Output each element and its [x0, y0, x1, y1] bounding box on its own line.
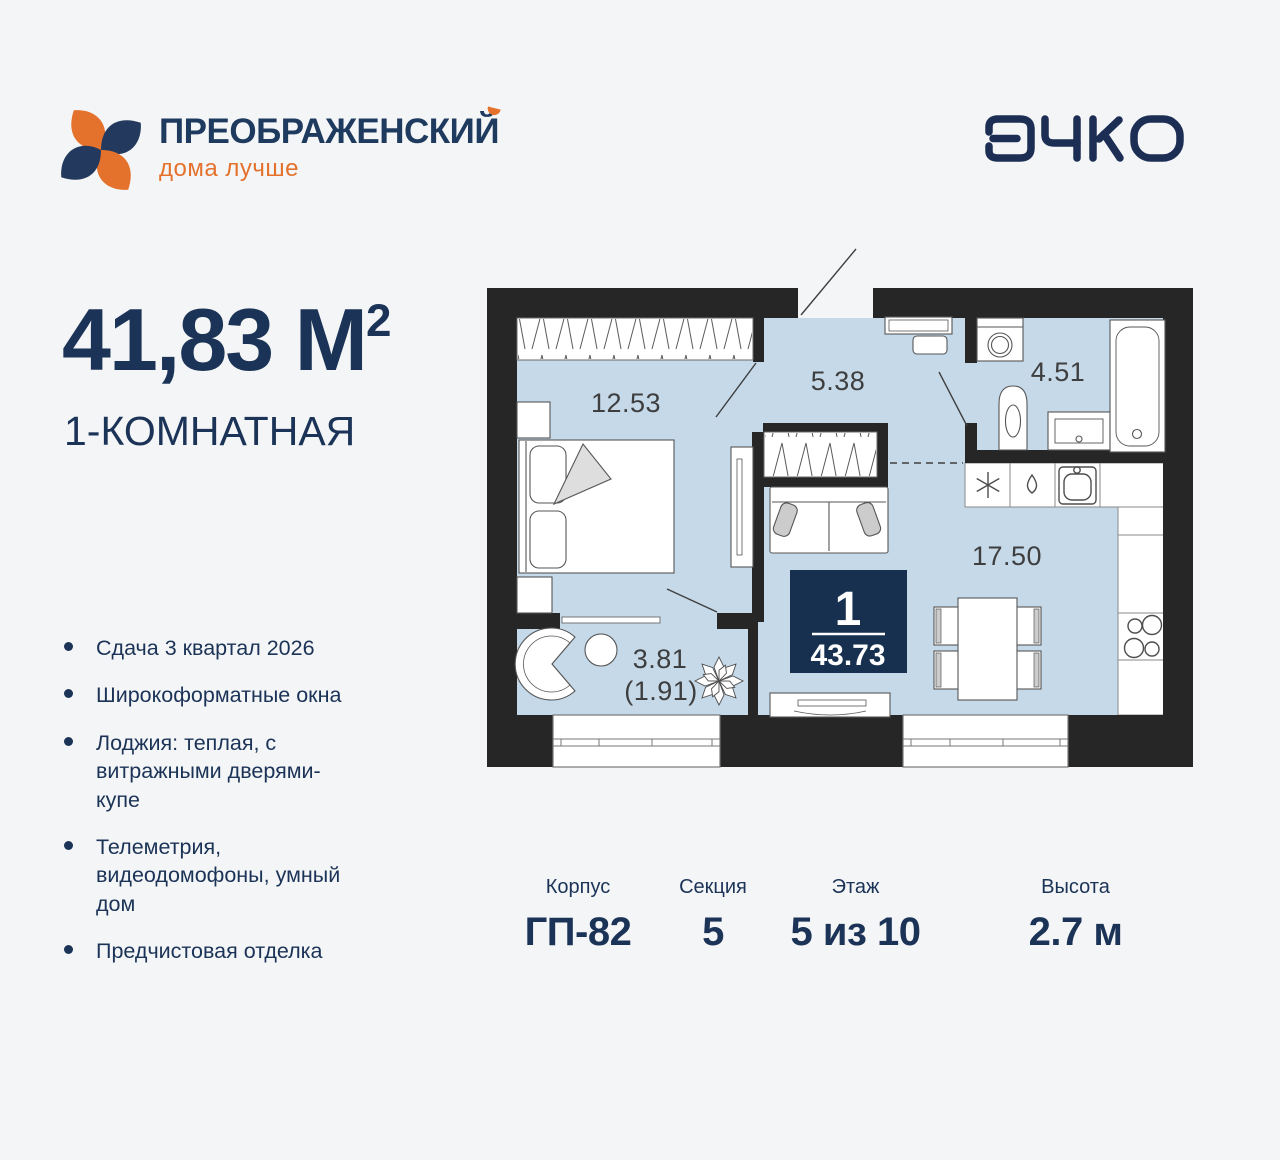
- detail-floor: Этаж 5 из 10: [768, 876, 943, 955]
- loggia-window: [553, 715, 720, 767]
- loggia-reduced-area-label: (1.91): [624, 676, 698, 706]
- detail-label: Секция: [653, 876, 773, 899]
- detail-value: 5: [653, 910, 773, 955]
- bullet-dot-icon: [64, 737, 73, 746]
- bullet-dot-icon: [64, 689, 73, 698]
- bullet-dot-icon: [64, 642, 73, 651]
- wall-right: [1163, 288, 1193, 767]
- flyer-canvas: ПРЕОБРАЖЕНСКИЙ дома лучше 41,83 М2 1-КОМ…: [0, 0, 1280, 1160]
- list-item: Предчистовая отделка: [64, 937, 356, 965]
- detail-label: Высота: [988, 876, 1163, 899]
- bullet-dot-icon: [64, 945, 73, 954]
- detail-value: 2.7 м: [988, 910, 1163, 955]
- kitchen-sink: [1059, 467, 1096, 504]
- apartment-badge: 1 43.73: [790, 570, 907, 673]
- flat-area-title: 41,83 М2: [62, 292, 391, 389]
- nightstand: [517, 402, 550, 438]
- wall-left: [487, 288, 517, 767]
- area-superscript: 2: [366, 295, 391, 346]
- kitchen-area-label: 17.50: [972, 541, 1042, 571]
- brand-flower-icon: [57, 106, 145, 194]
- brand-tagline: дома лучше: [159, 155, 499, 183]
- living-window: [903, 715, 1068, 767]
- bathroom-area-label: 4.51: [1031, 357, 1086, 387]
- list-item: Широкоформатные окна: [64, 681, 356, 709]
- bedroom-area-label: 12.53: [591, 388, 661, 418]
- detail-value: 5 из 10: [768, 910, 943, 955]
- detail-label: Корпус: [498, 876, 658, 899]
- brand-logo: ПРЕОБРАЖЕНСКИЙ дома лучше: [57, 106, 499, 194]
- wall-top-left: [487, 288, 798, 318]
- list-item: Телеметрия, видеодомофоны, умный дом: [64, 833, 356, 918]
- dining-table: [958, 598, 1017, 700]
- hallway-area-label: 5.38: [811, 366, 866, 396]
- plant: [695, 657, 743, 705]
- detail-section: Секция 5: [653, 876, 773, 955]
- badge-total-area: 43.73: [810, 639, 885, 672]
- nightstand: [517, 577, 552, 613]
- list-item: Сдача 3 квартал 2026: [64, 634, 356, 662]
- side-table: [585, 634, 617, 666]
- floor-plan: 12.53 5.38 4.51 17.50 3.81 (1.91) 1 43.7…: [480, 240, 1200, 775]
- detail-label: Этаж: [768, 876, 943, 899]
- detail-building: Корпус ГП-82: [498, 876, 658, 955]
- badge-room-count: 1: [835, 583, 862, 636]
- pillow: [530, 511, 566, 568]
- list-item: Лоджия: теплая, с витражными дверями-куп…: [64, 729, 356, 814]
- flat-type-title: 1-КОМНАТНАЯ: [64, 408, 355, 455]
- detail-value: ГП-82: [498, 910, 658, 955]
- bedroom-wardrobe: [517, 318, 753, 360]
- brand-name: ПРЕОБРАЖЕНСКИЙ: [159, 114, 499, 149]
- loggia-sliding-door: [562, 617, 660, 623]
- feature-list: Сдача 3 квартал 2026 Широкоформатные окн…: [64, 634, 356, 984]
- bullet-dot-icon: [64, 841, 73, 850]
- shoe-bench: [913, 336, 947, 354]
- wall-top-right: [873, 288, 1193, 318]
- entrance-door-swing: [801, 249, 856, 315]
- loggia-area-label: 3.81: [633, 644, 688, 674]
- detail-ceiling-height: Высота 2.7 м: [988, 876, 1163, 955]
- hall-wardrobe: [764, 432, 877, 477]
- developer-logo-enko: [973, 110, 1201, 168]
